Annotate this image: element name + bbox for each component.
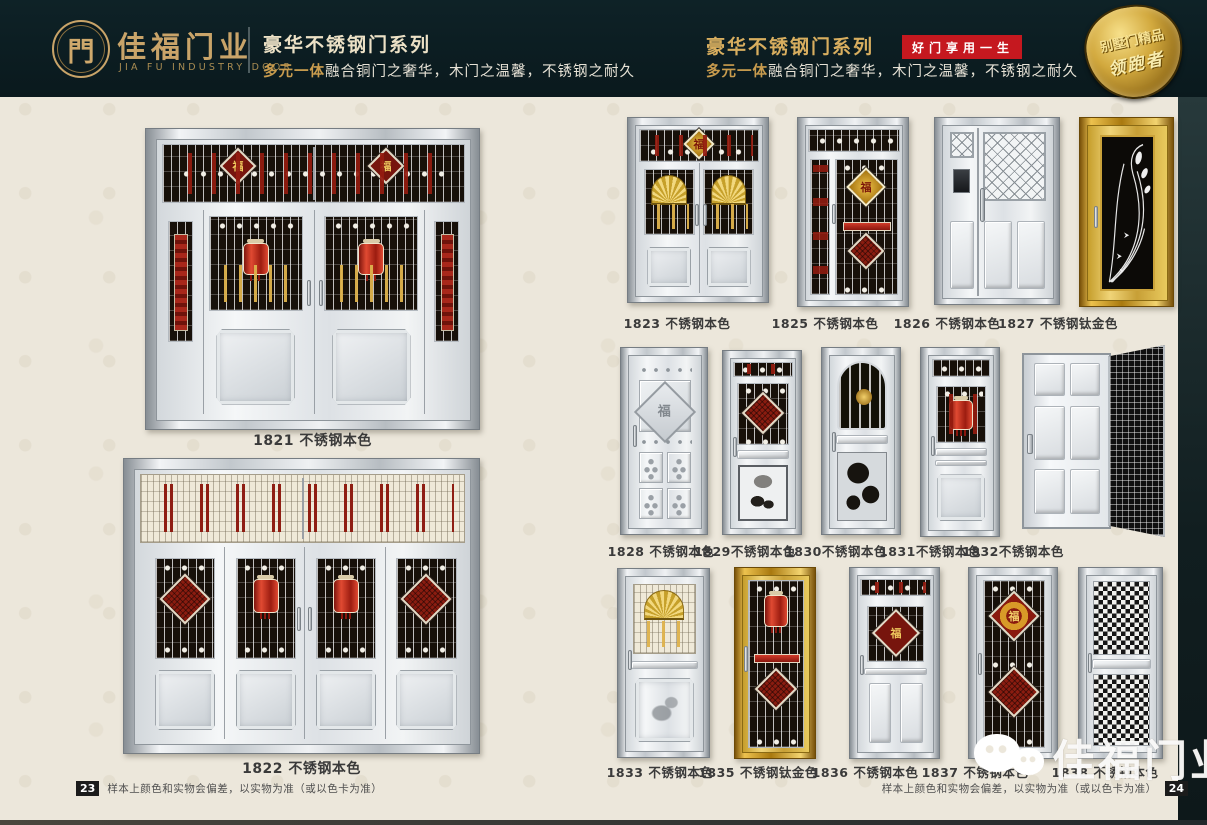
series-subtitle-left: 多元一体融合铜门之奢华，木门之温馨，不锈钢之耐久 (263, 60, 635, 81)
door-1833 (617, 568, 710, 758)
series-title-right: 豪华不锈钢门系列 (706, 32, 874, 59)
door-art: 福 (628, 355, 702, 529)
door-1836: 福 (849, 567, 940, 759)
door-label-1821: 1821 不锈钢本色 (145, 430, 480, 450)
slogan-badge: 好门享用一生 (902, 35, 1022, 59)
door-art (1022, 345, 1165, 537)
right-edge-strip (1178, 97, 1207, 825)
door-1832 (1022, 345, 1165, 537)
door-1830 (821, 347, 901, 535)
brand-logo-door-icon: 門 (52, 20, 110, 78)
door-1831 (920, 347, 1000, 537)
door-1828: 福 (620, 347, 708, 535)
door-1822 (123, 458, 480, 754)
door-label-1822: 1822 不锈钢本色 (123, 758, 480, 778)
watermark-text: 佳福门业 (1052, 727, 1207, 789)
door-art (1087, 125, 1168, 301)
door-art (134, 469, 471, 745)
logo-glyph: 門 (68, 30, 95, 69)
series-subtitle-right: 多元一体融合铜门之奢华，木门之温馨，不锈钢之耐久 (706, 60, 1078, 81)
subtitle-rest: 融合铜门之奢华，木门之温馨，不锈钢之耐久 (325, 64, 635, 80)
door-1821: 福福 (145, 128, 480, 430)
brand-name: 佳福门业 (117, 24, 253, 66)
door-art (829, 355, 895, 529)
catalog-spread: 門 佳福门业 JIA FU INDUSTRY DOOR 豪华不锈钢门系列 多元一… (0, 0, 1207, 825)
header: 門 佳福门业 JIA FU INDUSTRY DOOR 豪华不锈钢门系列 多元一… (0, 0, 1207, 97)
door-label-1827: 1827 不锈钢钛金色 (948, 313, 1168, 332)
door-art: 福 (857, 575, 934, 753)
premium-shield-badge: 别墅门精品 领跑者 (1079, 0, 1189, 105)
door-1823: 福 (627, 117, 769, 303)
door-1827 (1079, 117, 1174, 307)
header-divider (248, 27, 250, 73)
door-art (942, 125, 1054, 299)
door-1835 (734, 567, 816, 759)
door-art (742, 575, 810, 753)
door-art: 福 (635, 125, 763, 297)
door-art (730, 358, 796, 529)
bottom-edge-strip (0, 820, 1207, 825)
subtitle-accent: 多元一体 (263, 64, 325, 80)
subtitle-accent: 多元一体 (706, 64, 768, 80)
wechat-bubbles-icon (974, 732, 1052, 784)
subtitle-rest: 融合铜门之奢华，木门之温馨，不锈钢之耐久 (768, 64, 1078, 80)
door-art (928, 355, 994, 531)
watermark: 佳福门业 (974, 727, 1207, 789)
door-1825: 福 (797, 117, 909, 307)
door-art (625, 576, 704, 752)
door-art: 福 (805, 125, 903, 301)
door-art: 福福 (156, 139, 471, 421)
door-1826 (934, 117, 1060, 305)
series-title-left: 豪华不锈钢门系列 (263, 30, 431, 57)
door-1829 (722, 350, 802, 535)
door-label-1832: 1832不锈钢本色 (913, 541, 1113, 560)
